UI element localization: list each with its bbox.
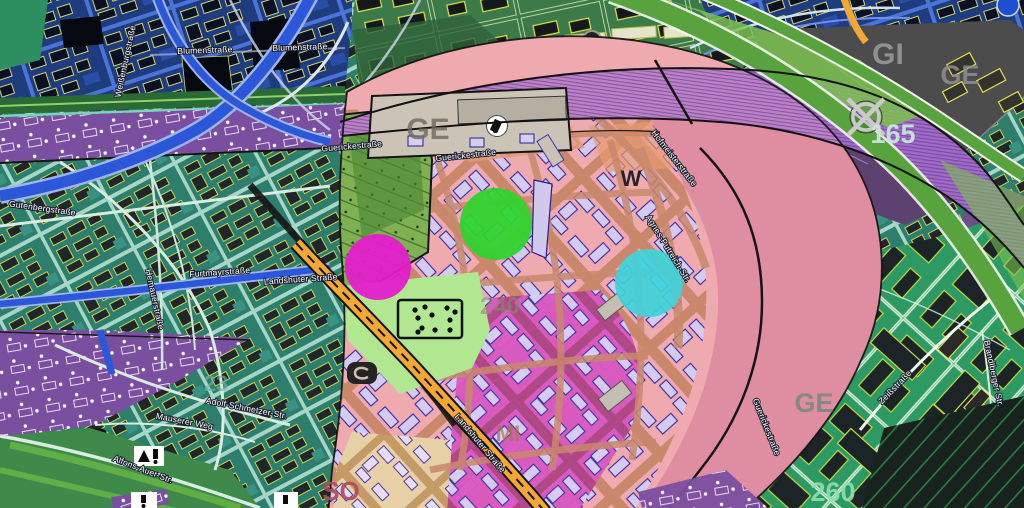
zone-label-ge-station: GE: [406, 113, 449, 146]
monument-circle-icon: [487, 116, 508, 137]
street-label: Blumenstraße: [177, 44, 233, 56]
zone-label-ge-right: GE: [940, 60, 979, 90]
symbol-box-3: [274, 492, 298, 508]
zone-label-so: SO: [322, 476, 360, 506]
map-viewport[interactable]: GE GI GE 165 GE 260 23 240 MI SO W Blume…: [0, 0, 1024, 508]
zone-label-ge-emerald: GE: [794, 388, 833, 418]
zone-label-mi: MI: [496, 421, 520, 446]
zone-label-165: 165: [870, 119, 915, 149]
zone-label-23: 23: [204, 371, 228, 396]
zone-label-gi: GI: [872, 38, 904, 71]
green-marker-circle[interactable]: [460, 188, 532, 260]
magenta-marker-circle[interactable]: [345, 234, 411, 300]
blue-dot-icon: [997, 0, 1019, 16]
zone-label-w: W: [621, 166, 642, 191]
map-canvas[interactable]: GE GI GE 165 GE 260 23 240 MI SO W Blume…: [0, 0, 1024, 508]
zone-label-260: 260: [810, 477, 855, 507]
street-label: Blumenstraße: [272, 41, 328, 53]
dark-badge-icon: [347, 362, 377, 384]
school-symbol-box: [131, 492, 157, 508]
zone-label-240: 240: [480, 293, 520, 320]
